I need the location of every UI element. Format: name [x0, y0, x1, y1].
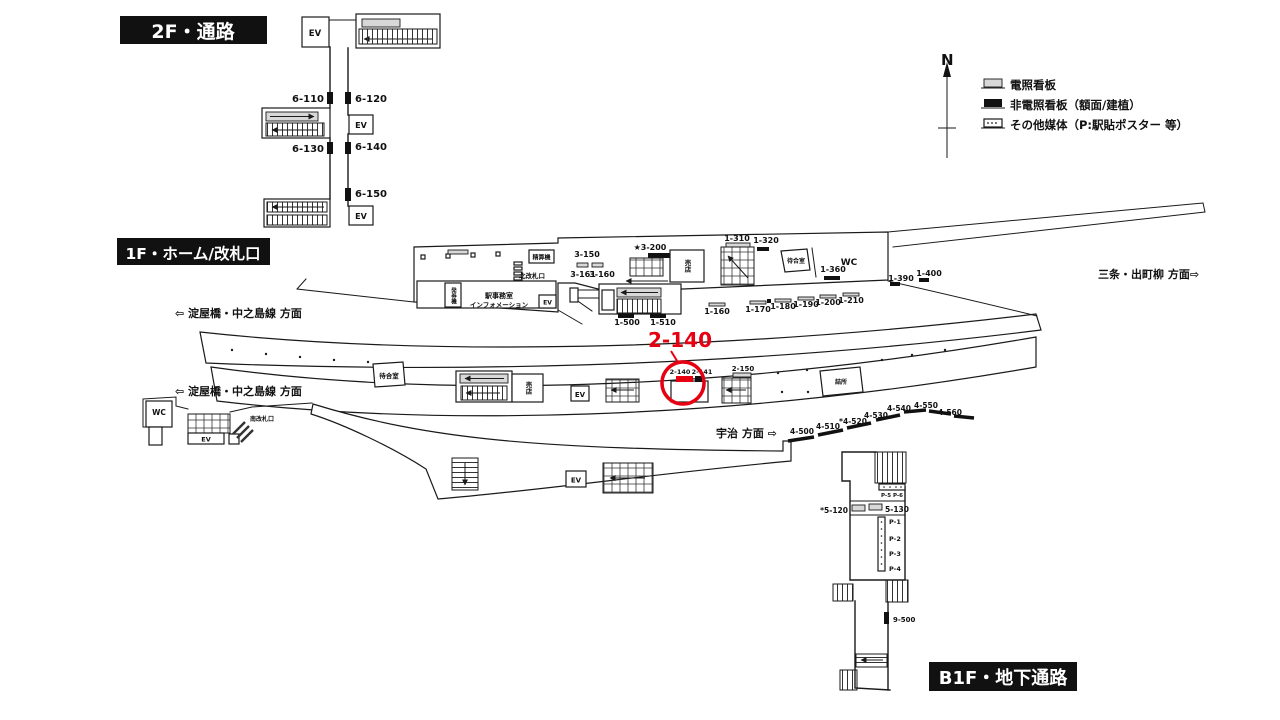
- unlit-sign-icon: [984, 99, 1002, 107]
- floor-1f-header: 1F・ホーム/改札口: [117, 238, 270, 265]
- unlit-sign-icon: [345, 142, 351, 154]
- other-media-strip: [878, 517, 885, 571]
- lit-sign-icon: [750, 301, 766, 304]
- pillar-dot: [806, 369, 808, 371]
- sign-label: 4-530: [864, 411, 888, 420]
- room-box: [149, 427, 162, 445]
- lit-sign-icon: [448, 250, 468, 254]
- unlit-sign-icon: [345, 188, 351, 201]
- legend: 電照看板 非電照看板（額面/建植） その他媒体（P:駅貼ポスター 等）: [981, 78, 1188, 132]
- sign-label: P-3: [889, 550, 901, 558]
- other-media-icon: [984, 119, 1002, 127]
- lit-sign-icon: [709, 303, 725, 306]
- pillar-dot: [777, 372, 779, 374]
- floor-b1f-title: B1F・地下通路: [939, 667, 1069, 689]
- sign-label: *4-520: [839, 417, 867, 426]
- stairs: [886, 580, 908, 602]
- pillar-dot: [231, 349, 233, 351]
- ev-label: EV: [355, 212, 367, 221]
- pillar-dot: [781, 391, 783, 393]
- sign-label: 6-130: [292, 144, 324, 155]
- sign-label: P-1: [889, 518, 901, 526]
- direction-yodoyabashi-lower: ⇦ 淀屋橋・中之島線 方面: [175, 384, 302, 398]
- sign-label: 4-510: [816, 422, 840, 431]
- direction-uji: 宇治 方面 ⇨: [716, 426, 777, 440]
- sign-label: 6-110: [292, 94, 324, 105]
- stairs: [833, 584, 853, 601]
- waiting-room-label: 待合室: [787, 257, 805, 265]
- legend-item-label: 電照看板: [1010, 78, 1056, 92]
- information-label: インフォメーション: [470, 301, 529, 309]
- lit-sign-icon: [362, 19, 400, 27]
- sign-label: 4-550: [914, 401, 938, 410]
- north-compass: N: [938, 51, 956, 158]
- floor-b1f-header: B1F・地下通路: [929, 662, 1077, 691]
- stairs: [617, 299, 661, 313]
- platform-edge-line: [888, 281, 1037, 316]
- sign-label: ★3-200: [634, 243, 667, 252]
- other-media-icon: [995, 122, 997, 124]
- stairs: [840, 670, 857, 690]
- sign-label: 2-140: [670, 368, 691, 376]
- pillar: [421, 255, 425, 259]
- other-media-strip: [881, 521, 883, 523]
- pillar: [496, 252, 500, 256]
- machine-box: [602, 290, 614, 310]
- pillar-dot: [333, 359, 335, 361]
- pillar: [446, 254, 450, 258]
- pillar-dot: [367, 361, 369, 363]
- sign-label: 1-160: [704, 307, 730, 316]
- ev-label: EV: [355, 121, 367, 130]
- legend-item-label: その他媒体（P:駅貼ポスター 等）: [1010, 118, 1188, 132]
- sign-label: 4-500: [790, 427, 814, 436]
- concourse-outline: [311, 404, 791, 499]
- staff-room-label: 詰所: [835, 378, 847, 386]
- floor-b1f-map: P-5 P-6 *5-120 5-130 P-1 P-2 P-3 P-4 9-5…: [820, 452, 915, 690]
- sign-label: 1-510: [650, 318, 676, 327]
- unlit-sign-icon: [345, 92, 351, 104]
- lit-sign-icon: [869, 504, 882, 510]
- stairs: [359, 29, 437, 44]
- unlit-sign-icon: [695, 376, 702, 382]
- stairs: [188, 414, 230, 433]
- other-media-strip: [883, 486, 885, 488]
- floor-1f-title: 1F・ホーム/改札口: [125, 244, 260, 263]
- other-media-strip: [895, 486, 897, 488]
- ev-label: EV: [575, 391, 586, 399]
- sign-label: 1-360: [820, 265, 846, 274]
- wc-label: WC: [152, 408, 166, 417]
- ticket-gate: [514, 262, 522, 265]
- floor-1f-south-concourse: EV: [311, 404, 791, 499]
- station-map-page: 2F・通路 1F・ホーム/改札口 B1F・地下通路 N 電照看板 非電照看板（額…: [0, 0, 1280, 720]
- corridor-walls: [330, 47, 348, 206]
- lit-sign-icon: [726, 243, 750, 247]
- unlit-sign-icon: [824, 276, 840, 280]
- stairs: [875, 452, 906, 483]
- kiosk-label: 売店: [683, 258, 691, 274]
- sign-label: 4-560: [938, 408, 962, 417]
- sign-label: 5-130: [885, 505, 909, 514]
- machine-box: [229, 434, 239, 444]
- legend-item-label: 非電照看板（額面/建植）: [1010, 98, 1141, 112]
- south-wall-signs: 4-500 4-510 *4-520 4-530 4-540 4-550 4-5…: [788, 401, 974, 441]
- other-media-icon: [987, 122, 989, 124]
- other-media-strip: [900, 486, 902, 488]
- highlighted-sign-icon: [676, 376, 693, 382]
- pillar-dot: [944, 349, 946, 351]
- other-media-strip: [881, 563, 883, 565]
- ev-label: EV: [543, 300, 552, 307]
- ev-label: EV: [309, 29, 322, 39]
- unlit-sign-icon: [327, 92, 333, 104]
- sign-label: 1-170: [745, 305, 771, 314]
- unlit-sign-icon: [919, 278, 929, 282]
- floor-1f-north-building: 発券機 駅事務室 インフォメーション EV 北改札口 精算機 3-150 3-1…: [297, 203, 1205, 327]
- other-media-icon: [991, 122, 993, 124]
- sign-label: 1-400: [916, 269, 942, 278]
- other-media-strip: [881, 542, 883, 544]
- station-office-label: 駅事務室: [485, 291, 513, 300]
- south-gate-label: 南改札口: [250, 415, 274, 423]
- sign-label: 1-210: [838, 296, 864, 305]
- unlit-sign-icon: [884, 612, 889, 624]
- south-gate-area: WC EV 南改札口: [143, 397, 312, 445]
- unlit-sign-icon: [757, 247, 769, 251]
- floor-2f-map: EV EV EV 6-110 6-120 6-130 6-140 6-150: [262, 14, 440, 227]
- stairs: [267, 215, 327, 225]
- sign-label: 6-140: [355, 142, 387, 153]
- unlit-sign-icon: [327, 142, 333, 154]
- west-wall: [297, 279, 414, 302]
- pillar-dot: [911, 354, 913, 356]
- sign-label: 9-500: [893, 616, 916, 624]
- sign-label: 1-500: [614, 318, 640, 327]
- kiosk-label: 売店: [524, 380, 532, 396]
- other-media-strip: [881, 528, 883, 530]
- sign-label: 6-150: [355, 189, 387, 200]
- sign-label: 4-540: [887, 404, 911, 413]
- stairs: [630, 258, 663, 276]
- sign-label: P-5 P-6: [881, 493, 903, 499]
- station-map-svg: 2F・通路 1F・ホーム/改札口 B1F・地下通路 N 電照看板 非電照看板（額…: [0, 0, 1280, 720]
- lit-sign-icon: [984, 79, 1002, 87]
- pillar: [471, 253, 475, 257]
- sign-label: 1-310: [724, 234, 750, 243]
- lit-sign-icon: [592, 263, 603, 267]
- floor-2f-header: 2F・通路: [120, 16, 267, 44]
- direction-yodoyabashi-upper: ⇦ 淀屋橋・中之島線 方面: [175, 306, 302, 320]
- ev-label: EV: [571, 477, 582, 485]
- north-gate-label: 北改札口: [519, 271, 545, 280]
- lit-sign-icon: [852, 505, 865, 511]
- sign-label: 6-120: [355, 94, 387, 105]
- sign-label: P-4: [889, 565, 901, 573]
- sign-label: 1-390: [888, 274, 914, 283]
- sign-label: P-2: [889, 535, 901, 543]
- direction-sanjo: 三条・出町柳 方面⇨: [1098, 267, 1199, 281]
- other-media-strip: [881, 556, 883, 558]
- pillar-dot: [265, 353, 267, 355]
- lit-sign-icon: [577, 263, 588, 267]
- other-media-strip: [889, 486, 891, 488]
- track-wedge-walls: [888, 203, 1205, 247]
- ev-label: EV: [201, 436, 210, 444]
- sign-label: 3-150: [574, 250, 600, 259]
- other-media-strip: [881, 549, 883, 551]
- sign-label: 2-150: [732, 365, 755, 373]
- sign-label: *5-120: [820, 506, 848, 515]
- other-media-strip: [881, 535, 883, 537]
- sign-label: 3-160: [589, 270, 615, 279]
- highlight-label: 2-140: [648, 328, 712, 352]
- machine-box: [570, 288, 578, 302]
- pillar-dot: [881, 359, 883, 361]
- sign-label: 1-320: [753, 236, 779, 245]
- pillar-dot: [807, 391, 809, 393]
- waiting-room-label: 待合室: [379, 371, 399, 380]
- unlit-sign-icon: [788, 437, 814, 441]
- pillar-dot: [299, 356, 301, 358]
- ticket-gate: [514, 267, 522, 270]
- fare-adjustment-label: 精算機: [532, 254, 550, 262]
- floor-2f-title: 2F・通路: [151, 20, 235, 43]
- lit-sign-icon: [733, 373, 751, 377]
